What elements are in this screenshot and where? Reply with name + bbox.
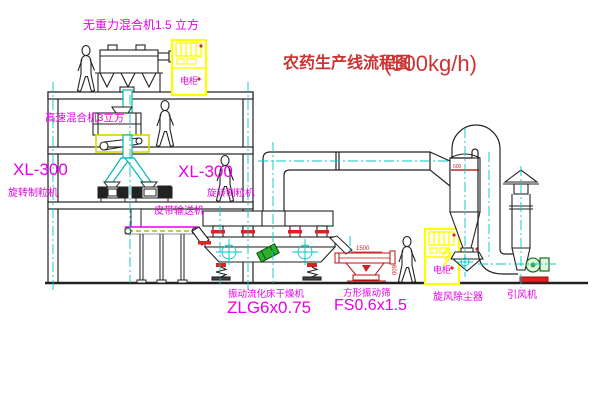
flow-diagram-canvas: 电柜 [0, 0, 600, 403]
label-cyclone: 旋风除尘器 [433, 290, 483, 303]
label-fan: 引风机 [507, 288, 537, 301]
granulator-left [98, 182, 128, 202]
label-granulator-right-model: XL-300 [178, 162, 233, 181]
granulator-right [132, 182, 172, 202]
dim-screen-width: 600 [390, 265, 396, 276]
label-granulator-left-name: 旋转制粒机 [8, 186, 58, 199]
label-screen-model: FS0.6x1.5 [334, 297, 407, 314]
label-granulator-right-name: 旋转制粒机 [207, 187, 255, 199]
label-high-speed-mixer: 高速混合机3立方 [45, 111, 124, 124]
y-chute [105, 158, 151, 182]
label-belt-conveyor: 皮带输送机 [154, 204, 204, 217]
mixer2-discharge-pipe [123, 135, 132, 158]
dim-cyclone: 600 [453, 164, 462, 170]
fluid-bed-dryer [192, 211, 335, 280]
worker-figure-second-floor [157, 101, 174, 147]
control-cabinet-upper [172, 40, 206, 95]
worker-figure-ground [399, 237, 416, 283]
label-dryer-model: ZLG6x0.75 [227, 298, 311, 317]
granulate-drop-pipe [131, 209, 141, 227]
label-granulator-left-model: XL-300 [13, 160, 68, 179]
worker-figure-top-floor [78, 46, 95, 92]
square-vibrating-screen [335, 251, 395, 281]
belt-conveyor [125, 227, 198, 283]
gravity-free-mixer [95, 45, 172, 92]
dim-screen-length: 1500 [356, 246, 370, 252]
diagram-title-capacity: (500kg/h) [384, 51, 477, 76]
label-gravity-free-mixer: 无重力混合机1.5 立方 [83, 17, 199, 32]
pesticide-line-drawing: 电柜 [0, 0, 600, 403]
